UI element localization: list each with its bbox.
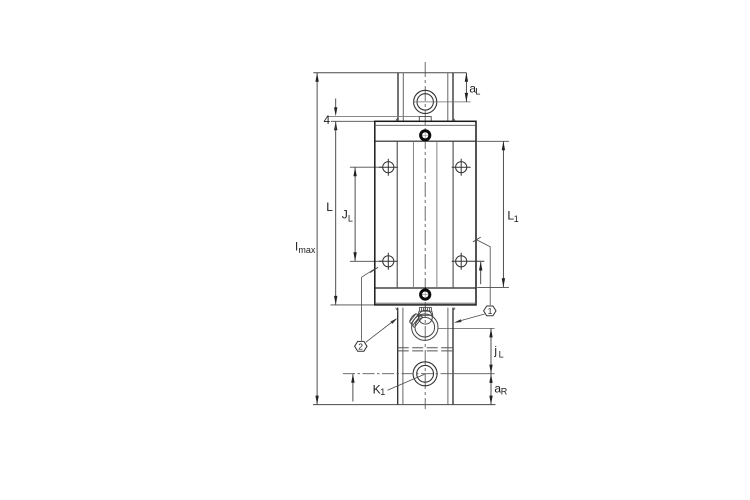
svg-text:2: 2 [358, 341, 363, 351]
svg-text:L: L [348, 214, 353, 224]
svg-text:4: 4 [324, 115, 331, 127]
svg-text:R: R [501, 387, 508, 397]
svg-text:max: max [298, 245, 316, 255]
svg-text:1: 1 [488, 306, 493, 316]
svg-text:J: J [342, 208, 348, 222]
svg-text:1: 1 [380, 387, 385, 397]
svg-text:L: L [326, 200, 333, 214]
svg-text:1: 1 [514, 214, 519, 224]
svg-text:j: j [493, 344, 497, 358]
svg-text:L: L [475, 87, 480, 97]
svg-text:L: L [499, 350, 504, 360]
